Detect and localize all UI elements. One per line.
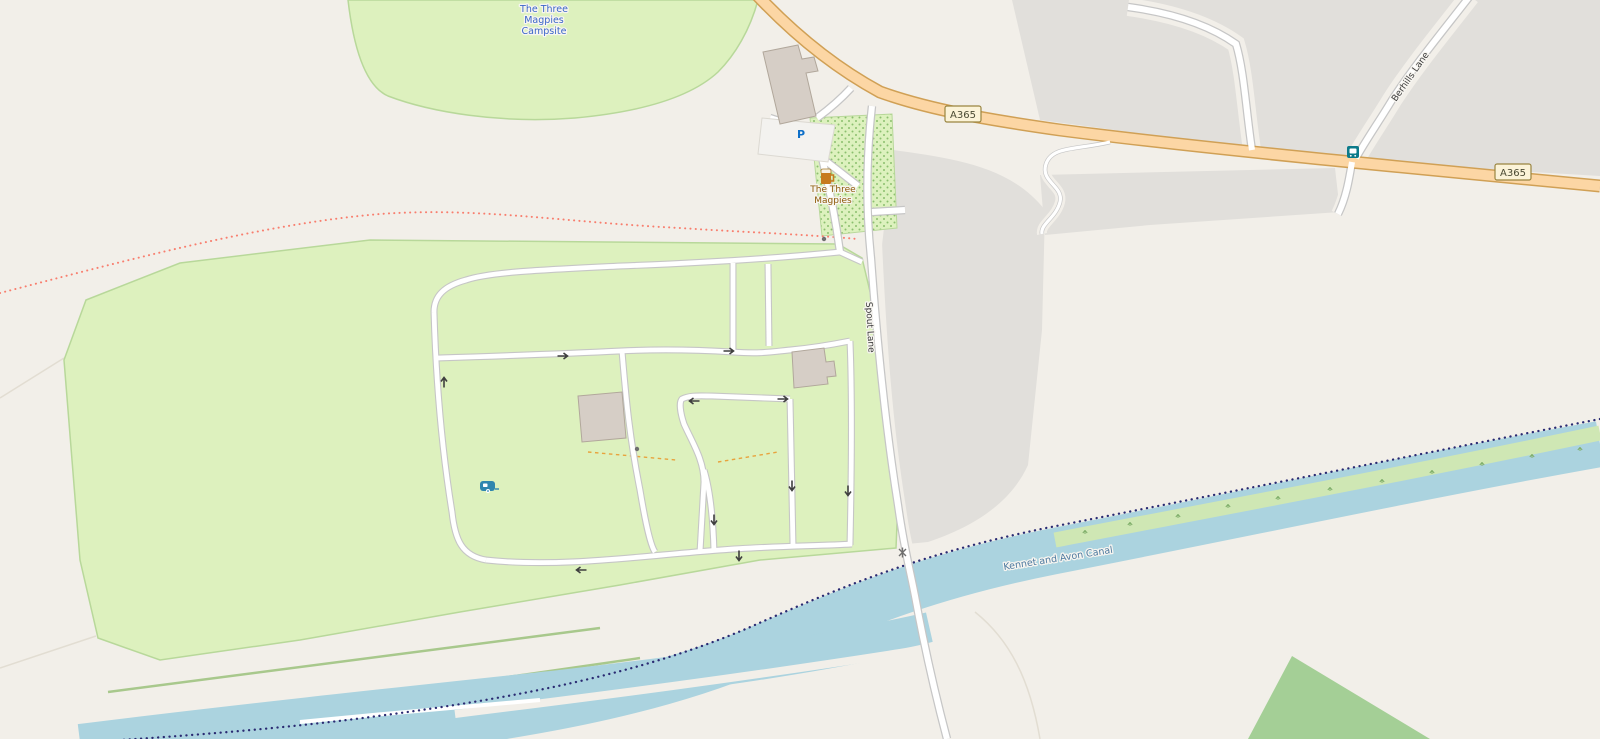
- campsite-building-1: [578, 392, 626, 442]
- svg-text:The Three: The Three: [519, 4, 568, 15]
- map-canvas[interactable]: P The Three Magpies Campsite The: [0, 0, 1600, 739]
- svg-text:Magpies: Magpies: [814, 196, 852, 206]
- road-ref-shield-2: A365: [1495, 164, 1531, 180]
- map-viewport[interactable]: P The Three Magpies Campsite The: [0, 0, 1600, 739]
- svg-text:A365: A365: [1500, 168, 1526, 179]
- road-ref-shield-1: A365: [945, 106, 981, 122]
- gate-marker-icon: [635, 447, 639, 451]
- svg-text:Magpies: Magpies: [524, 15, 564, 26]
- svg-text:The Three: The Three: [809, 185, 856, 195]
- svg-text:Campsite: Campsite: [522, 26, 567, 37]
- gate-marker-icon: [822, 237, 826, 241]
- parking-icon: P: [797, 128, 805, 141]
- svg-text:A365: A365: [950, 110, 976, 121]
- campsite-name-label: The Three Magpies Campsite: [519, 4, 568, 37]
- pub-name-label: The Three Magpies: [809, 185, 856, 206]
- bus-stop-icon: [1347, 146, 1359, 158]
